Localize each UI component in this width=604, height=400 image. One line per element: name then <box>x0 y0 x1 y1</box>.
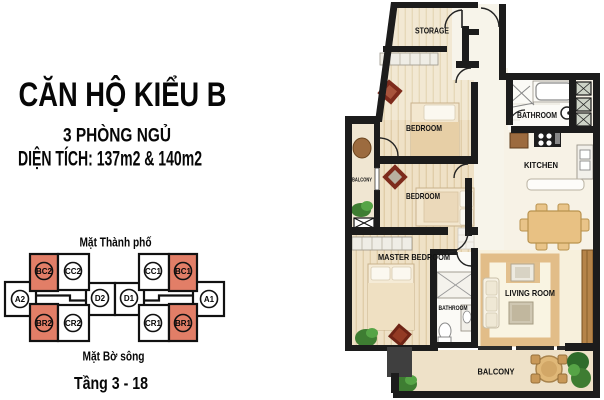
svg-text:BR2: BR2 <box>36 319 53 328</box>
svg-text:CC1: CC1 <box>145 267 162 276</box>
svg-text:CĂN HỘ KIỂU B: CĂN HỘ KIỂU B <box>19 75 227 114</box>
svg-text:BEDROOM: BEDROOM <box>406 123 442 133</box>
svg-text:MASTER BEDROOM: MASTER BEDROOM <box>378 252 450 262</box>
svg-text:BATHROOM: BATHROOM <box>517 111 557 120</box>
svg-text:CC2: CC2 <box>65 267 82 276</box>
svg-text:BEDROOM: BEDROOM <box>406 191 440 201</box>
svg-text:BR1: BR1 <box>175 319 192 328</box>
svg-text:BC2: BC2 <box>36 267 53 276</box>
svg-text:A1: A1 <box>204 295 215 304</box>
svg-text:CR1: CR1 <box>145 319 162 328</box>
svg-text:BC1: BC1 <box>175 267 192 276</box>
svg-text:D1: D1 <box>124 294 135 303</box>
svg-text:CR2: CR2 <box>65 319 82 328</box>
svg-text:D2: D2 <box>95 294 106 303</box>
svg-text:3 PHÒNG NGỦ: 3 PHÒNG NGỦ <box>63 125 171 147</box>
svg-text:BALCONY: BALCONY <box>478 368 516 377</box>
svg-text:DIỆN TÍCH: 137m2 & 140m2: DIỆN TÍCH: 137m2 & 140m2 <box>18 147 202 171</box>
svg-text:LIVING ROOM: LIVING ROOM <box>505 288 555 298</box>
svg-text:KITCHEN: KITCHEN <box>524 160 558 170</box>
svg-text:BALCONY: BALCONY <box>352 178 373 184</box>
svg-text:STORAGE: STORAGE <box>415 26 449 36</box>
svg-text:Mặt Thành phố: Mặt Thành phố <box>80 235 152 249</box>
svg-text:BATHROOM: BATHROOM <box>439 306 468 312</box>
svg-text:Mặt Bờ sông: Mặt Bờ sông <box>83 350 145 364</box>
svg-text:Tầng 3 - 18: Tầng 3 - 18 <box>74 373 148 393</box>
svg-text:A2: A2 <box>15 295 26 304</box>
